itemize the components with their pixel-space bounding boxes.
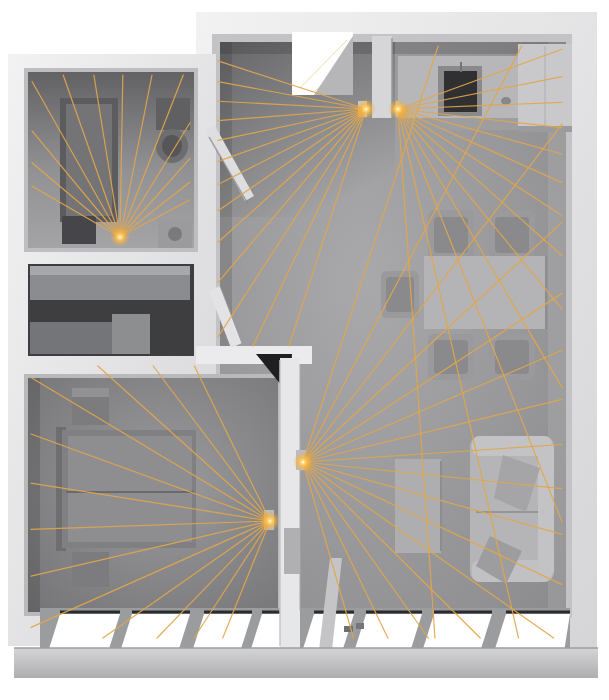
sensor-living-center-icon (301, 460, 304, 463)
sensor-living (293, 452, 313, 472)
window-pane-7 (422, 614, 492, 652)
dining-chair-4-seat (495, 340, 529, 374)
bedroom-left-shadow (28, 378, 40, 612)
kitchen-counter-front (398, 118, 526, 130)
floorplan-scene (0, 0, 609, 700)
sensor-bathroom (110, 227, 130, 247)
sensor-hall-center-icon (364, 107, 367, 110)
dining-chair-3-seat (434, 340, 468, 374)
sensor-kitchen (388, 99, 408, 119)
floorplan-render (0, 0, 609, 700)
sensor-bedroom-center-icon (268, 519, 271, 522)
bedroom-living-wall (280, 358, 300, 648)
closet-shelf-lip (30, 266, 190, 275)
bathroom-sink-basin (168, 227, 182, 241)
dining-chair-1-seat (434, 217, 468, 253)
base-slab (14, 648, 598, 678)
window-pane-8 (494, 614, 570, 652)
floorplan-shapes (8, 12, 598, 678)
wall-panel-lower (284, 528, 300, 574)
sofa-backrest (538, 442, 554, 576)
sensor-bedroom (260, 511, 280, 531)
sensor-bathroom-center-icon (118, 235, 121, 238)
window-pane-6 (354, 614, 422, 652)
window-pane-2 (120, 614, 190, 652)
windowsill-object-2 (356, 623, 364, 629)
sensor-hall (356, 99, 376, 119)
kitchen-cabinet-shadow (518, 126, 572, 132)
toilet-bowl-inner (162, 135, 182, 157)
coffee-table (395, 459, 441, 553)
kitchen-counter-item (501, 97, 511, 105)
sensor-kitchen-center-icon (396, 107, 399, 110)
nightstand-top-face (72, 388, 109, 397)
closet-counter-corner (112, 314, 150, 354)
nightstand-bottom (72, 552, 109, 587)
